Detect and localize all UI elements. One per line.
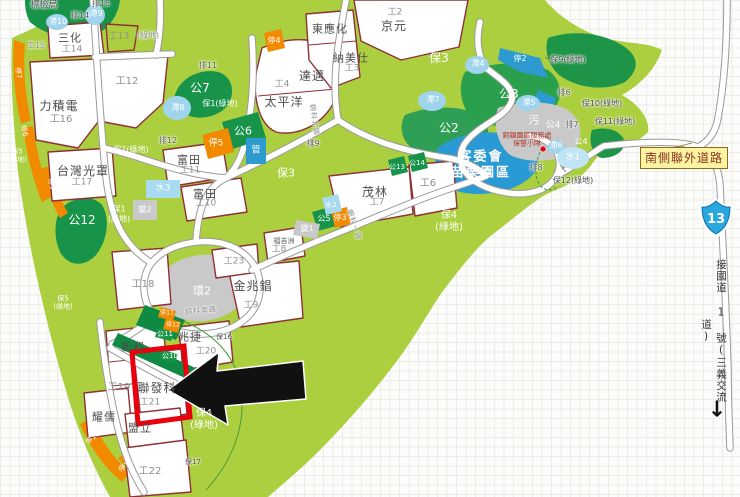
down-arrow-icon: ↓ bbox=[708, 398, 726, 423]
highway-13-shield: 13 bbox=[699, 198, 733, 238]
park-map: 13 標檢局排15排14滯10滯9三化工14工13(綠地)工15工12力積電工1… bbox=[0, 0, 740, 497]
map-canvas: 13 bbox=[0, 0, 740, 497]
national-highway-note: 接國道 1 號(三義交流道) bbox=[705, 256, 729, 406]
south-outer-road-label: 南側聯外道路 bbox=[640, 147, 728, 169]
service-center-dot bbox=[541, 147, 546, 152]
shield-number: 13 bbox=[707, 212, 725, 227]
